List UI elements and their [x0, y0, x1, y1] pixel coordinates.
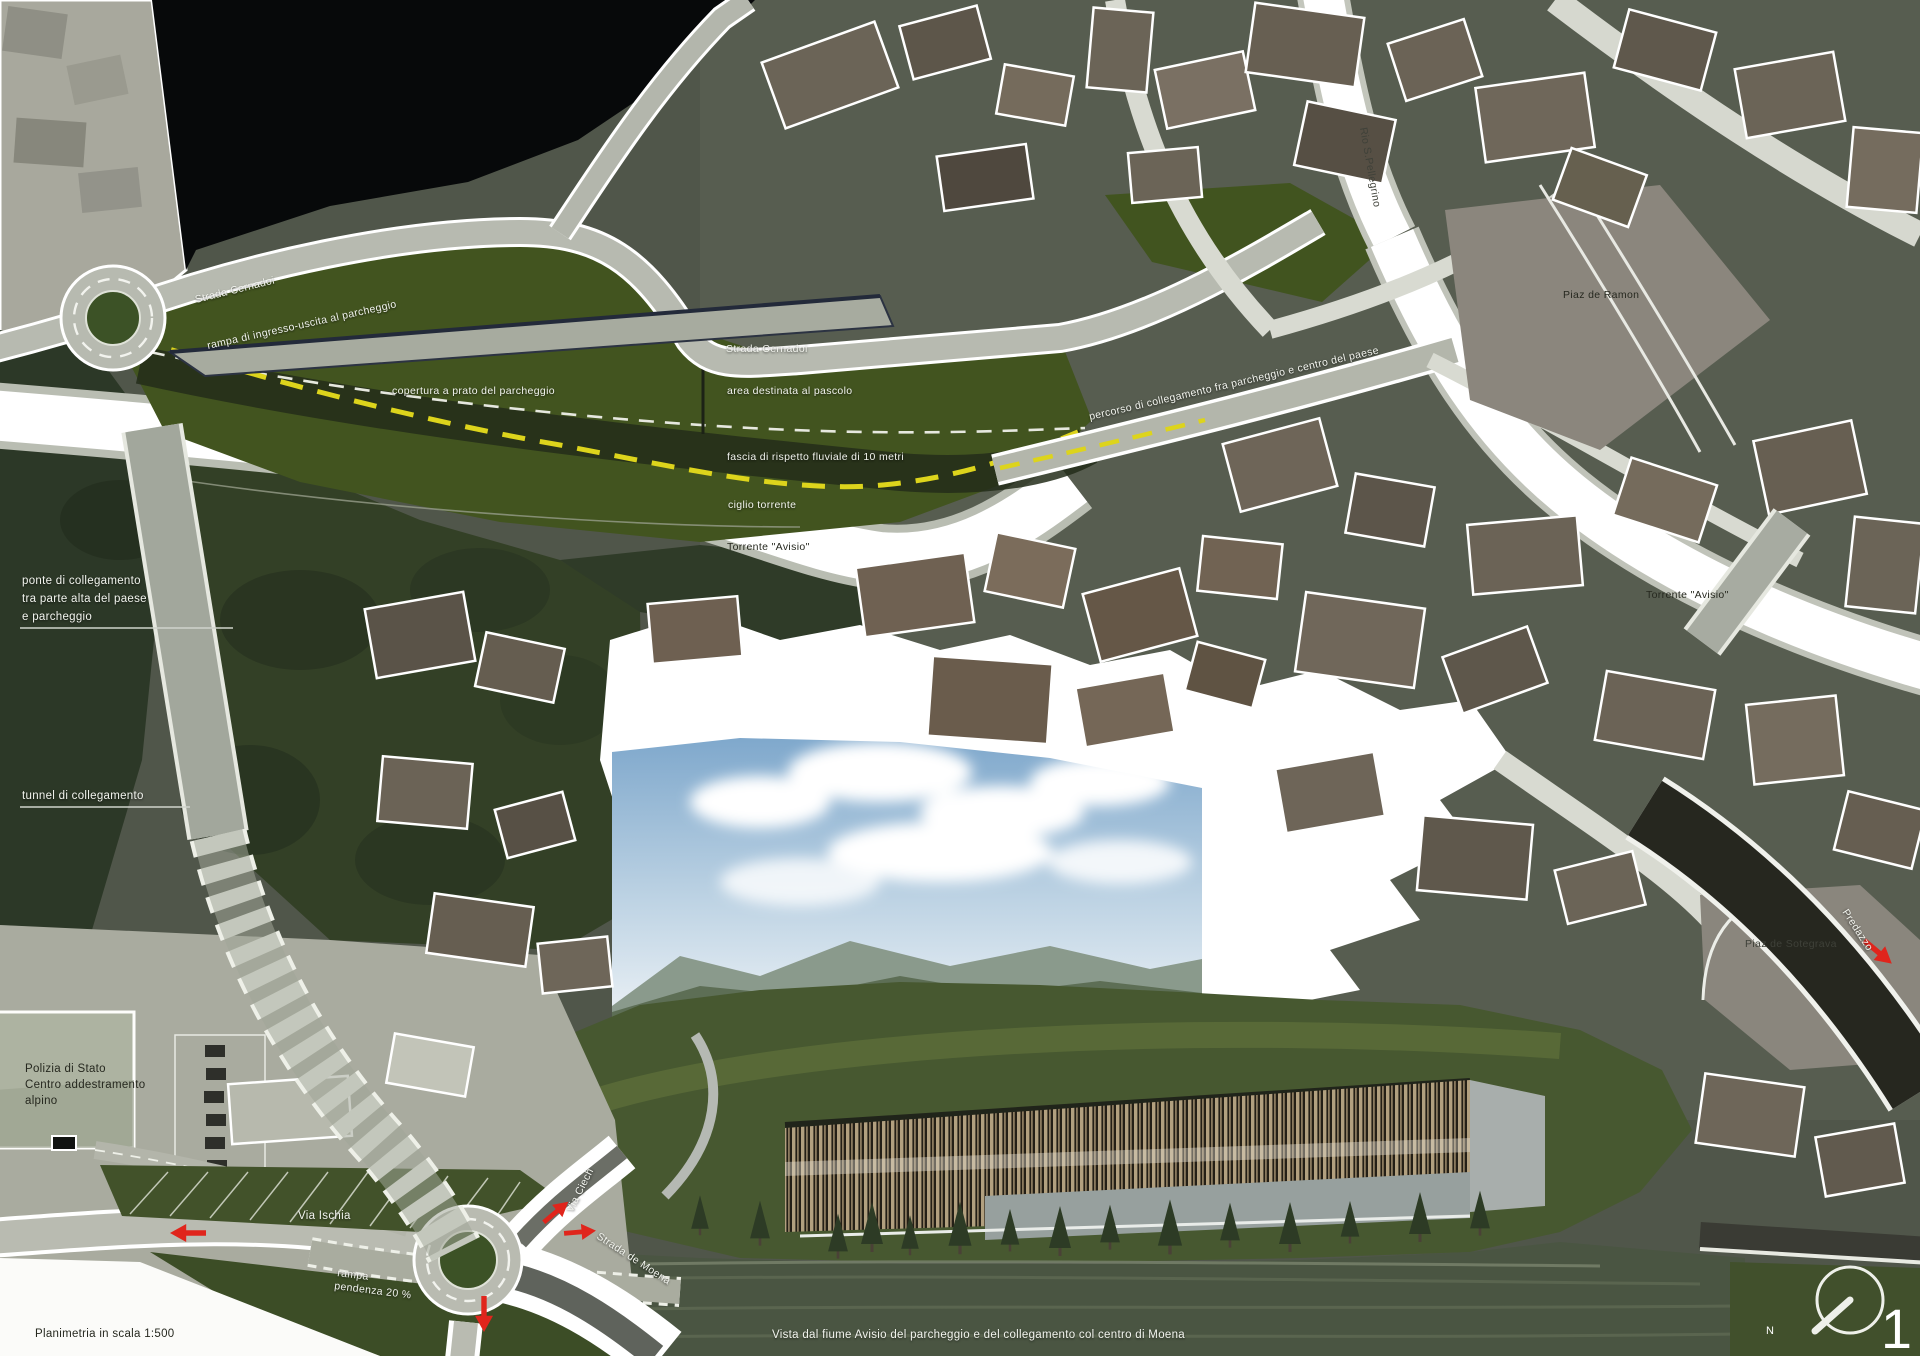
building-footprint [1847, 127, 1920, 213]
scale-label: Planimetria in scala 1:500 [35, 1328, 174, 1340]
building-footprint [1197, 536, 1282, 599]
building-footprint [1295, 592, 1425, 688]
label-area-pascolo: area destinata al pascolo [727, 385, 853, 397]
building-footprint [927, 656, 1052, 744]
building-footprint [1087, 8, 1154, 93]
label-polizia-line3: alpino [25, 1095, 58, 1107]
label-ponte-line1: ponte di collegamento [22, 575, 141, 587]
render-end-wall [1470, 1080, 1545, 1212]
label-fascia-rispetto: fascia di rispetto fluviale di 10 metri [727, 451, 904, 463]
label-torrente-avisio-right: Torrente "Avisio" [1646, 589, 1729, 601]
masterplan-drawing: Strada Cernadoi rampa di ingresso-uscita… [0, 0, 1920, 1356]
road-south-stub [462, 1322, 466, 1356]
view-caption: Vista dal fiume Avisio del parcheggio e … [772, 1329, 1185, 1341]
label-piaz-de-ramon: Piaz de Ramon [1563, 289, 1639, 301]
north-label: N [1766, 1325, 1774, 1337]
label-ponte-line2: tra parte alta del paese [22, 593, 147, 605]
building-footprint [1417, 815, 1533, 899]
label-piaz-de-sotegrava: Piaz de Sotegrava [1745, 938, 1837, 950]
label-ciglio-torrente: ciglio torrente [728, 499, 796, 511]
building-footprint [1696, 1073, 1805, 1156]
label-strada-cernadoi-mid: Strada Cernadoi [726, 343, 808, 355]
building-footprint [1746, 696, 1844, 785]
label-polizia-line1: Polizia di Stato [25, 1063, 106, 1075]
label-copertura-prato: copertura a prato del parcheggio [392, 385, 555, 397]
building-footprint [1467, 515, 1583, 594]
building-footprint [1246, 3, 1365, 88]
building-footprint [856, 553, 975, 638]
label-polizia-line2: Centro addestramento [25, 1079, 145, 1091]
building-footprint [1815, 1124, 1904, 1197]
sheet-number: 1 [1881, 1297, 1912, 1356]
label-via-ischia: Via Ischia [298, 1210, 351, 1222]
masterplan-sheet: Strada Cernadoi rampa di ingresso-uscita… [0, 0, 1920, 1356]
label-ponte-line3: e parcheggio [22, 611, 92, 623]
building-footprint [13, 118, 86, 168]
building-footprint [1345, 474, 1434, 547]
building-footprint [648, 596, 743, 664]
building-footprint [78, 167, 142, 213]
building-footprint [426, 893, 533, 966]
building-footprint [1128, 147, 1202, 203]
building-footprint [996, 64, 1074, 125]
building-footprint [937, 144, 1034, 211]
building-footprint [538, 936, 613, 993]
roundabout-north [61, 266, 165, 370]
building-footprint [377, 756, 472, 829]
building-footprint [2, 6, 68, 59]
label-tunnel: tunnel di collegamento [22, 790, 144, 802]
label-torrente-avisio-center: Torrente "Avisio" [727, 541, 810, 553]
building-footprint [1845, 517, 1920, 614]
